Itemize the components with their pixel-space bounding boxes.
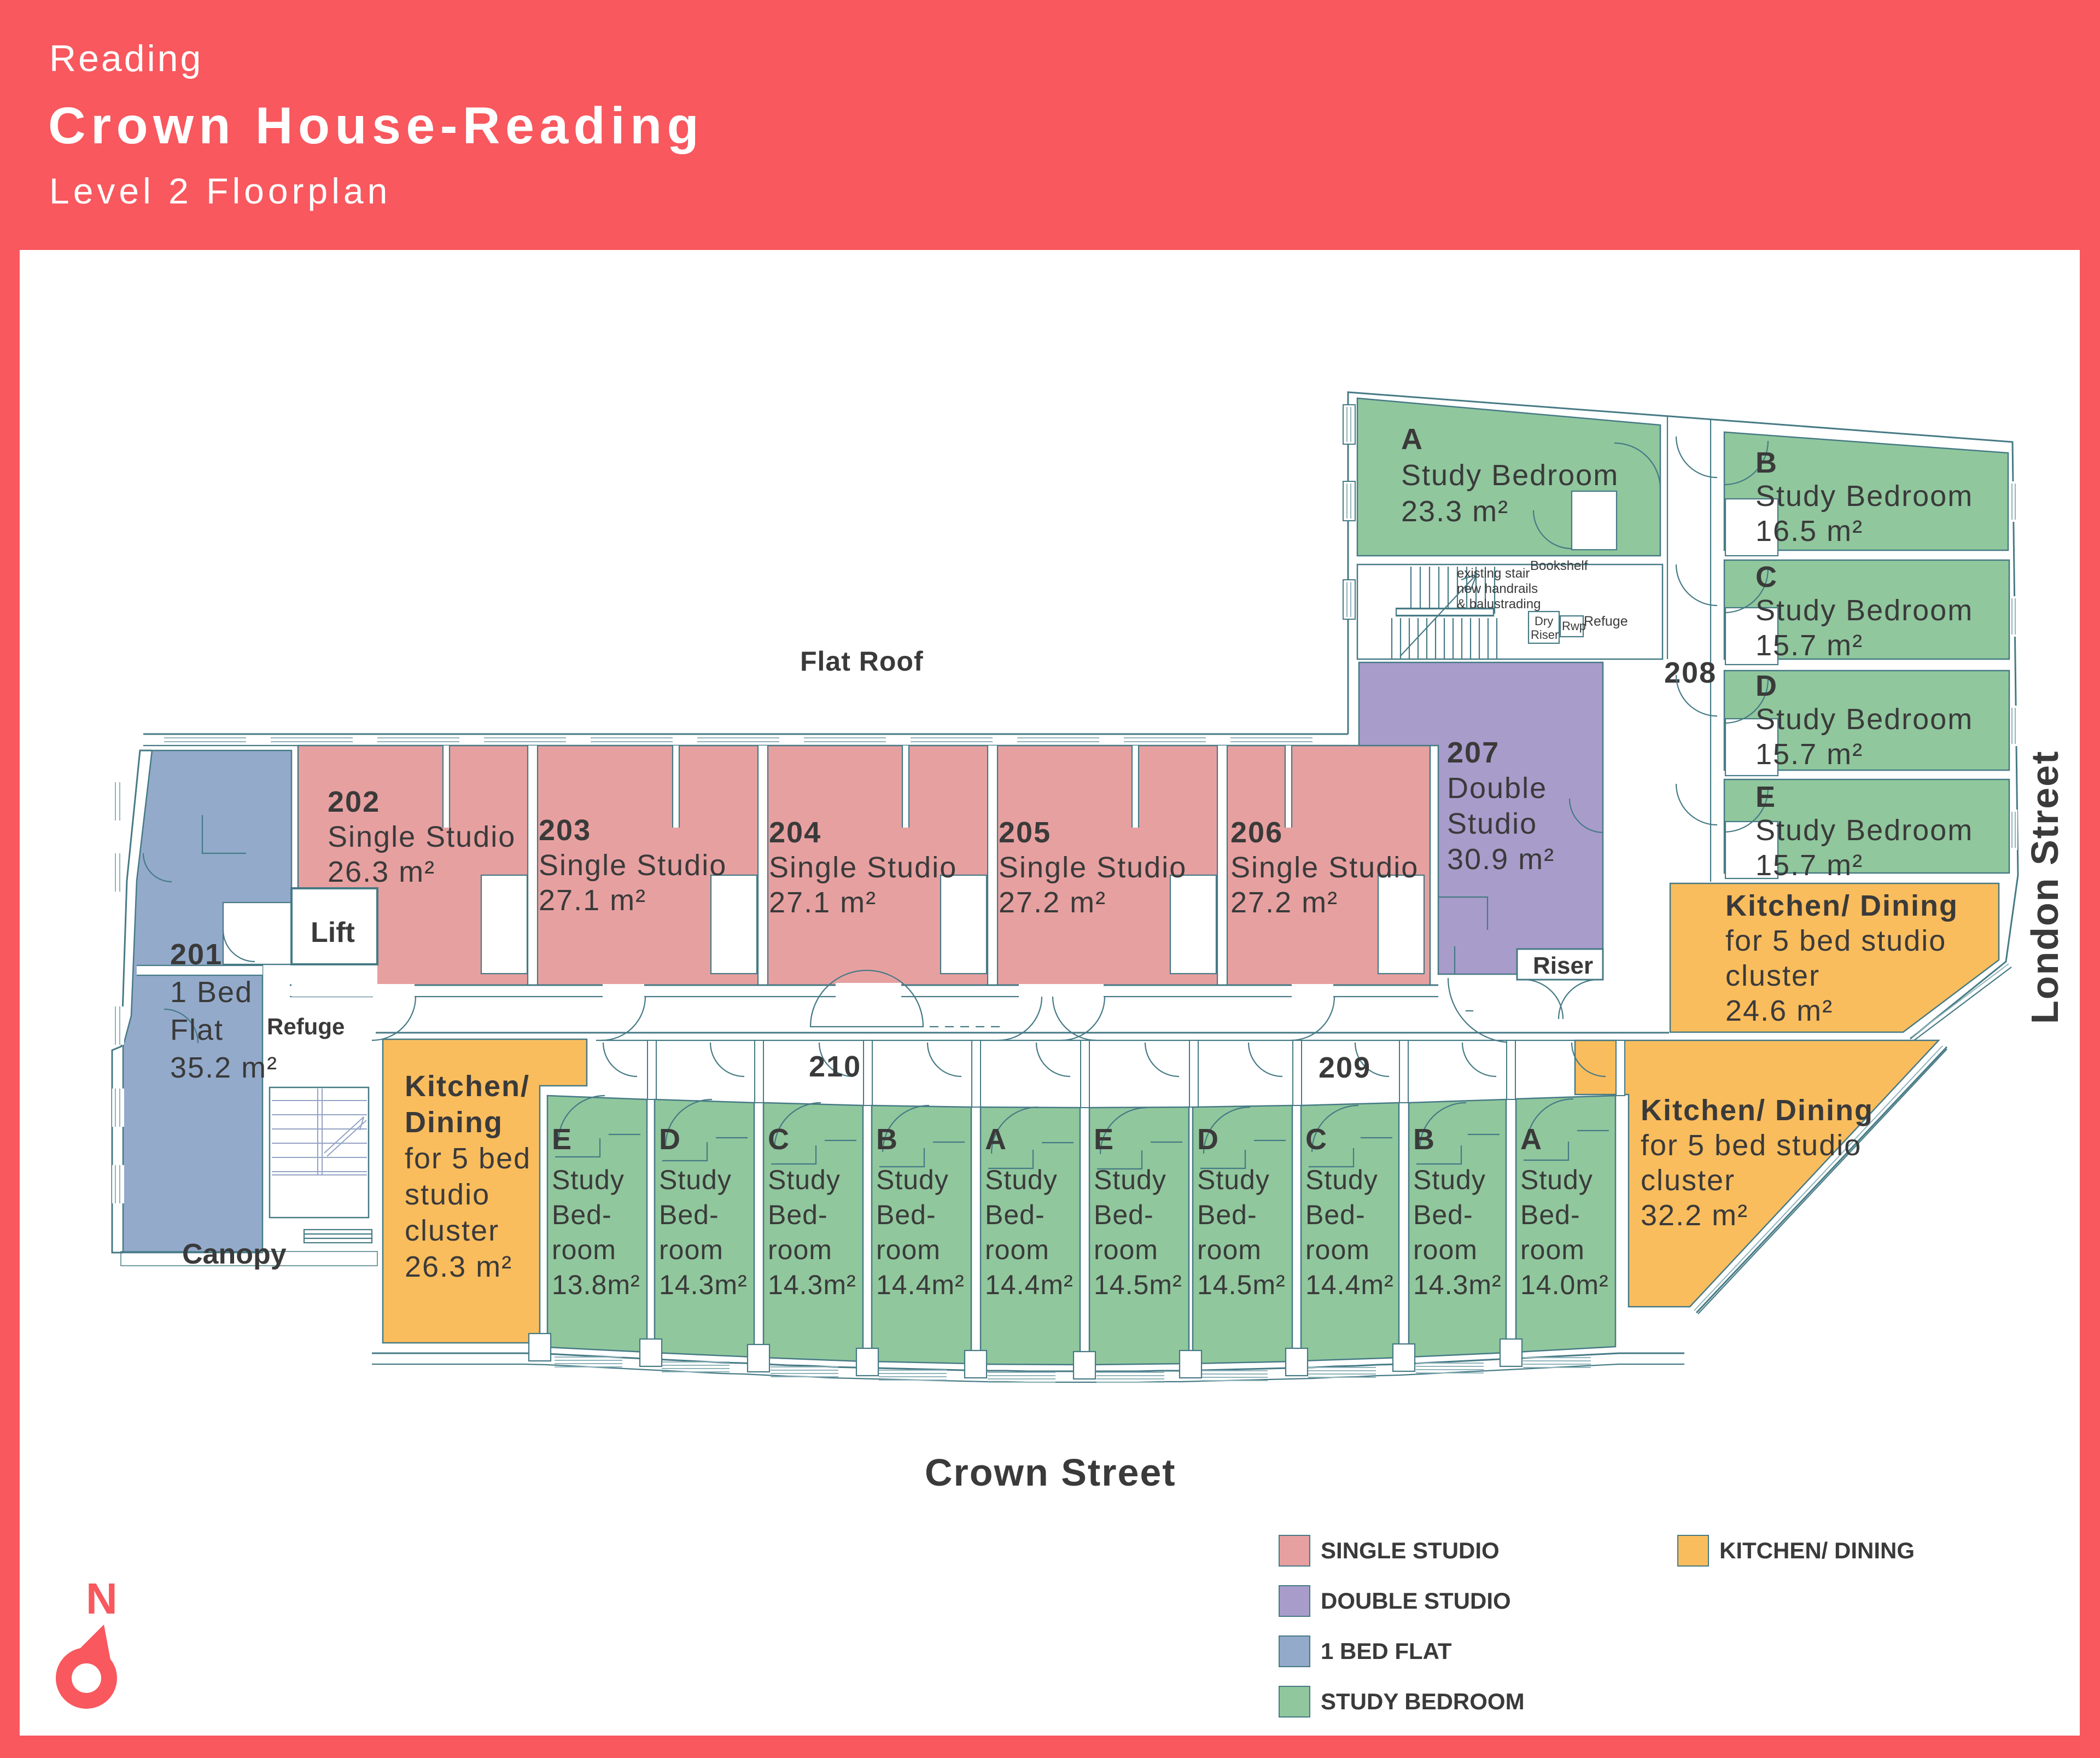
svg-text:C: C: [1305, 1123, 1327, 1156]
svg-text:14.5m²: 14.5m²: [1094, 1270, 1182, 1300]
svg-text:Rwp: Rwp: [1562, 619, 1586, 633]
svg-text:27.1 m²: 27.1 m²: [539, 884, 646, 917]
svg-text:Study Bedroom: Study Bedroom: [1755, 703, 1973, 736]
svg-text:C: C: [1755, 561, 1778, 593]
svg-text:Study: Study: [1305, 1165, 1378, 1195]
svg-text:Riser: Riser: [1533, 952, 1593, 979]
svg-text:15.7 m²: 15.7 m²: [1755, 629, 1863, 662]
svg-text:Riser: Riser: [1531, 628, 1559, 642]
svg-text:Bed-: Bed-: [1197, 1200, 1257, 1230]
svg-text:209: 209: [1319, 1051, 1371, 1084]
svg-text:London Street: London Street: [2023, 750, 2066, 1024]
svg-text:A: A: [1520, 1123, 1542, 1156]
svg-text:Double: Double: [1447, 772, 1547, 805]
svg-text:Bed-: Bed-: [1305, 1200, 1366, 1230]
svg-text:Study Bedroom: Study Bedroom: [1755, 480, 1973, 513]
svg-text:Refuge: Refuge: [267, 1014, 345, 1039]
svg-text:D: D: [1197, 1123, 1218, 1156]
svg-text:SINGLE STUDIO: SINGLE STUDIO: [1321, 1538, 1500, 1563]
svg-text:new handrails: new handrails: [1457, 581, 1538, 596]
svg-text:Lift: Lift: [311, 917, 355, 948]
svg-text:Bed-: Bed-: [985, 1200, 1045, 1230]
svg-text:27.2 m²: 27.2 m²: [999, 886, 1106, 919]
svg-text:Crown Street: Crown Street: [925, 1451, 1176, 1494]
svg-text:15.7 m²: 15.7 m²: [1755, 738, 1863, 771]
svg-text:room: room: [1305, 1235, 1370, 1265]
svg-text:cluster: cluster: [1725, 959, 1820, 992]
svg-text:for 5 bed studio: for 5 bed studio: [1725, 924, 1946, 957]
svg-text:room: room: [985, 1235, 1049, 1265]
svg-text:210: 210: [809, 1050, 861, 1083]
svg-text:Bed-: Bed-: [876, 1200, 936, 1230]
svg-text:cluster: cluster: [1641, 1164, 1735, 1197]
svg-text:14.3m²: 14.3m²: [659, 1270, 748, 1300]
svg-text:Studio: Studio: [1447, 807, 1537, 840]
svg-text:room: room: [552, 1235, 616, 1265]
svg-text:27.1 m²: 27.1 m²: [769, 886, 877, 919]
svg-text:& balustrading: & balustrading: [1457, 597, 1541, 612]
svg-text:14.4m²: 14.4m²: [985, 1270, 1074, 1300]
svg-text:Single Studio: Single Studio: [999, 851, 1187, 884]
svg-text:Single Studio: Single Studio: [539, 849, 727, 882]
svg-text:Dry: Dry: [1535, 614, 1553, 628]
svg-text:room: room: [1520, 1235, 1585, 1265]
svg-text:Study: Study: [876, 1165, 949, 1195]
svg-text:C: C: [768, 1123, 789, 1156]
svg-text:14.0m²: 14.0m²: [1520, 1270, 1609, 1300]
svg-text:14.3m²: 14.3m²: [768, 1270, 856, 1300]
svg-text:26.3 m²: 26.3 m²: [328, 855, 435, 888]
svg-text:Single Studio: Single Studio: [769, 851, 957, 884]
svg-text:E: E: [1755, 781, 1776, 813]
svg-text:14.3m²: 14.3m²: [1413, 1270, 1502, 1300]
svg-text:Study: Study: [659, 1165, 732, 1195]
svg-text:Kitchen/ Dining: Kitchen/ Dining: [1641, 1094, 1874, 1127]
svg-text:26.3 m²: 26.3 m²: [405, 1250, 512, 1283]
svg-text:Dining: Dining: [405, 1106, 503, 1139]
svg-text:1 Bed: 1 Bed: [170, 976, 253, 1009]
svg-text:201: 201: [170, 938, 223, 971]
svg-text:Study: Study: [1413, 1165, 1486, 1195]
svg-text:Bed-: Bed-: [1413, 1200, 1473, 1230]
svg-text:206: 206: [1230, 816, 1283, 849]
svg-text:B: B: [876, 1123, 897, 1156]
svg-text:D: D: [659, 1123, 680, 1156]
svg-text:cluster: cluster: [405, 1214, 499, 1247]
svg-text:room: room: [1094, 1235, 1158, 1265]
svg-text:24.6 m²: 24.6 m²: [1725, 994, 1833, 1027]
svg-text:14.4m²: 14.4m²: [876, 1270, 965, 1300]
svg-text:for 5 bed: for 5 bed: [405, 1142, 531, 1175]
svg-text:STUDY BEDROOM: STUDY BEDROOM: [1321, 1689, 1525, 1714]
svg-text:207: 207: [1447, 736, 1500, 769]
svg-text:Reading: Reading: [49, 38, 203, 79]
svg-text:Bed-: Bed-: [1520, 1200, 1580, 1230]
svg-text:Crown House-Reading: Crown House-Reading: [48, 97, 704, 155]
svg-text:13.8m²: 13.8m²: [552, 1270, 640, 1300]
svg-text:DOUBLE STUDIO: DOUBLE STUDIO: [1321, 1588, 1511, 1614]
svg-text:E: E: [552, 1123, 571, 1156]
svg-text:15.7 m²: 15.7 m²: [1755, 849, 1863, 882]
svg-text:Flat: Flat: [170, 1014, 224, 1046]
svg-text:Bed-: Bed-: [552, 1200, 612, 1230]
svg-text:Study Bedroom: Study Bedroom: [1755, 814, 1973, 847]
svg-text:27.2 m²: 27.2 m²: [1230, 886, 1338, 919]
svg-text:B: B: [1413, 1123, 1434, 1156]
svg-text:Study: Study: [1520, 1165, 1593, 1195]
svg-text:208: 208: [1664, 656, 1717, 689]
svg-text:Kitchen/: Kitchen/: [405, 1070, 530, 1103]
svg-text:Refuge: Refuge: [1584, 614, 1628, 629]
svg-text:existing stair: existing stair: [1457, 566, 1530, 581]
svg-text:KITCHEN/ DINING: KITCHEN/ DINING: [1719, 1538, 1915, 1563]
svg-text:room: room: [768, 1235, 832, 1265]
svg-text:Flat Roof: Flat Roof: [800, 646, 924, 677]
svg-text:Bed-: Bed-: [659, 1200, 719, 1230]
svg-text:room: room: [659, 1235, 724, 1265]
svg-text:32.2 m²: 32.2 m²: [1641, 1199, 1748, 1232]
svg-text:202: 202: [328, 785, 380, 818]
svg-text:Level 2 Floorplan: Level 2 Floorplan: [49, 171, 391, 211]
svg-text:E: E: [1094, 1123, 1113, 1156]
svg-text:D: D: [1755, 670, 1778, 702]
svg-text:A: A: [985, 1123, 1006, 1156]
svg-text:Kitchen/ Dining: Kitchen/ Dining: [1725, 889, 1958, 922]
svg-text:Single Studio: Single Studio: [1230, 851, 1419, 884]
svg-text:B: B: [1755, 446, 1778, 479]
svg-text:Bed-: Bed-: [768, 1200, 828, 1230]
svg-text:1 BED FLAT: 1 BED FLAT: [1321, 1638, 1452, 1664]
svg-text:for 5 bed studio: for 5 bed studio: [1641, 1129, 1862, 1162]
svg-text:Study: Study: [985, 1165, 1058, 1195]
svg-text:16.5 m²: 16.5 m²: [1755, 515, 1863, 548]
svg-text:Study: Study: [1197, 1165, 1270, 1195]
svg-text:35.2 m²: 35.2 m²: [170, 1051, 278, 1084]
svg-text:23.3 m²: 23.3 m²: [1401, 495, 1509, 528]
svg-text:Study: Study: [552, 1165, 625, 1195]
svg-text:A: A: [1401, 423, 1424, 456]
svg-text:30.9 m²: 30.9 m²: [1447, 843, 1555, 876]
svg-text:room: room: [1197, 1235, 1262, 1265]
svg-text:Study Bedroom: Study Bedroom: [1755, 594, 1973, 627]
svg-text:Study Bedroom: Study Bedroom: [1401, 459, 1619, 492]
svg-text:N: N: [86, 1574, 118, 1623]
svg-text:14.4m²: 14.4m²: [1305, 1270, 1394, 1300]
svg-text:205: 205: [999, 816, 1051, 849]
svg-text:14.5m²: 14.5m²: [1197, 1270, 1286, 1300]
svg-text:Bed-: Bed-: [1094, 1200, 1154, 1230]
svg-text:studio: studio: [405, 1178, 490, 1211]
svg-text:Bookshelf: Bookshelf: [1530, 558, 1588, 573]
svg-text:Study: Study: [768, 1165, 841, 1195]
svg-text:room: room: [876, 1235, 941, 1265]
svg-text:203: 203: [539, 814, 591, 847]
svg-text:204: 204: [769, 816, 821, 849]
svg-text:Single Studio: Single Studio: [328, 820, 516, 853]
svg-text:room: room: [1413, 1235, 1478, 1265]
svg-text:Canopy: Canopy: [182, 1238, 287, 1270]
svg-text:Study: Study: [1094, 1165, 1166, 1195]
